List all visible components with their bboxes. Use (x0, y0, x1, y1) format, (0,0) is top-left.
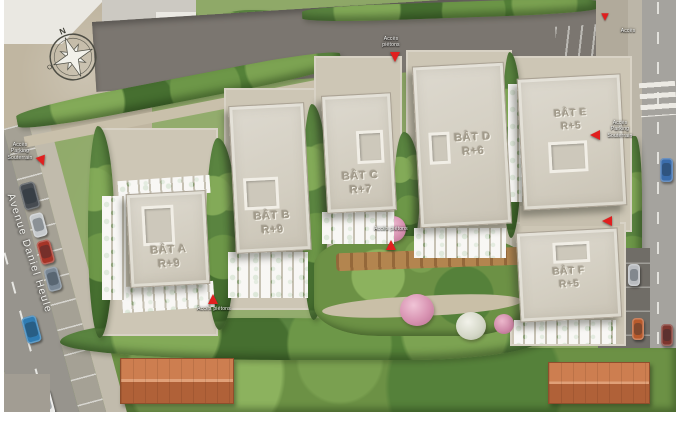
tree-white-blossom (456, 312, 486, 340)
building-e-skylight (548, 140, 589, 173)
marker-arrow-building-a-icon (208, 294, 218, 304)
building-f-label: BÂT F R+5 (519, 262, 620, 293)
marker-caption-parking-east: Accès Parking Souterrain (603, 120, 637, 139)
marker-caption-northeast: Accès (608, 28, 648, 34)
marker-arrow-northeast-icon (601, 13, 609, 21)
orange-roof-right (548, 362, 650, 404)
crosswalk (639, 81, 676, 117)
terrace-d-south (414, 228, 506, 258)
marker-caption-parking-west: Accès Parking Souterrain (5, 142, 35, 161)
building-c-skylight (356, 130, 385, 164)
building-d-height: R+6 (439, 143, 508, 161)
car-orange-parking (632, 318, 644, 340)
car-darkred-right-road (661, 324, 673, 346)
marker-arrow-pedestrian-north-icon (390, 52, 400, 62)
building-e: BÂT E R+5 (517, 73, 628, 210)
terrace-b-south (228, 252, 308, 298)
building-b-skylight (243, 177, 280, 211)
building-c-height: R+7 (327, 181, 396, 199)
building-a-height: R+9 (130, 255, 209, 273)
marker-arrow-parking-east-icon (590, 130, 600, 140)
tree-pink-2 (400, 294, 434, 326)
tree-pink-3 (494, 314, 514, 334)
terrace-f-south (514, 320, 616, 344)
marker-caption-pedestrian-north: Accès piétons (376, 36, 406, 49)
building-a-skylight (141, 205, 175, 247)
aerial-masterplan: BÂT A R+9 BÂT B R+9 BÂT C R+7 BÂT D R+6 … (0, 0, 680, 425)
building-c: BÂT C R+7 (321, 92, 397, 214)
terrace-a-west (102, 196, 126, 300)
orange-roof-left (120, 358, 234, 404)
building-b-label: BÂT B R+9 (235, 207, 310, 239)
building-a: BÂT A R+9 (126, 190, 211, 288)
building-c-label: BÂT C R+7 (326, 167, 395, 199)
marker-arrow-garden-icon (386, 240, 396, 250)
pavement-bottom-left (4, 374, 50, 412)
marker-caption-building-a: Accès piétons (192, 306, 236, 312)
marker-arrow-building-f-icon (602, 216, 612, 226)
building-f-skylight (552, 241, 590, 264)
car-blue-right-road (660, 158, 673, 182)
building-d-label: BÂT D R+6 (438, 129, 507, 161)
road-right-dashes (657, 2, 659, 382)
building-b-height: R+9 (235, 221, 310, 239)
building-a-label: BÂT A R+9 (129, 241, 208, 274)
building-b: BÂT B R+9 (228, 102, 312, 254)
scene: BÂT A R+9 BÂT B R+9 BÂT C R+7 BÂT D R+6 … (4, 0, 676, 412)
marker-caption-garden: Accès piétons (370, 226, 412, 232)
car-gray-parking (628, 264, 640, 286)
building-f: BÂT F R+5 (516, 227, 623, 322)
building-d: BÂT D R+6 (412, 62, 512, 229)
